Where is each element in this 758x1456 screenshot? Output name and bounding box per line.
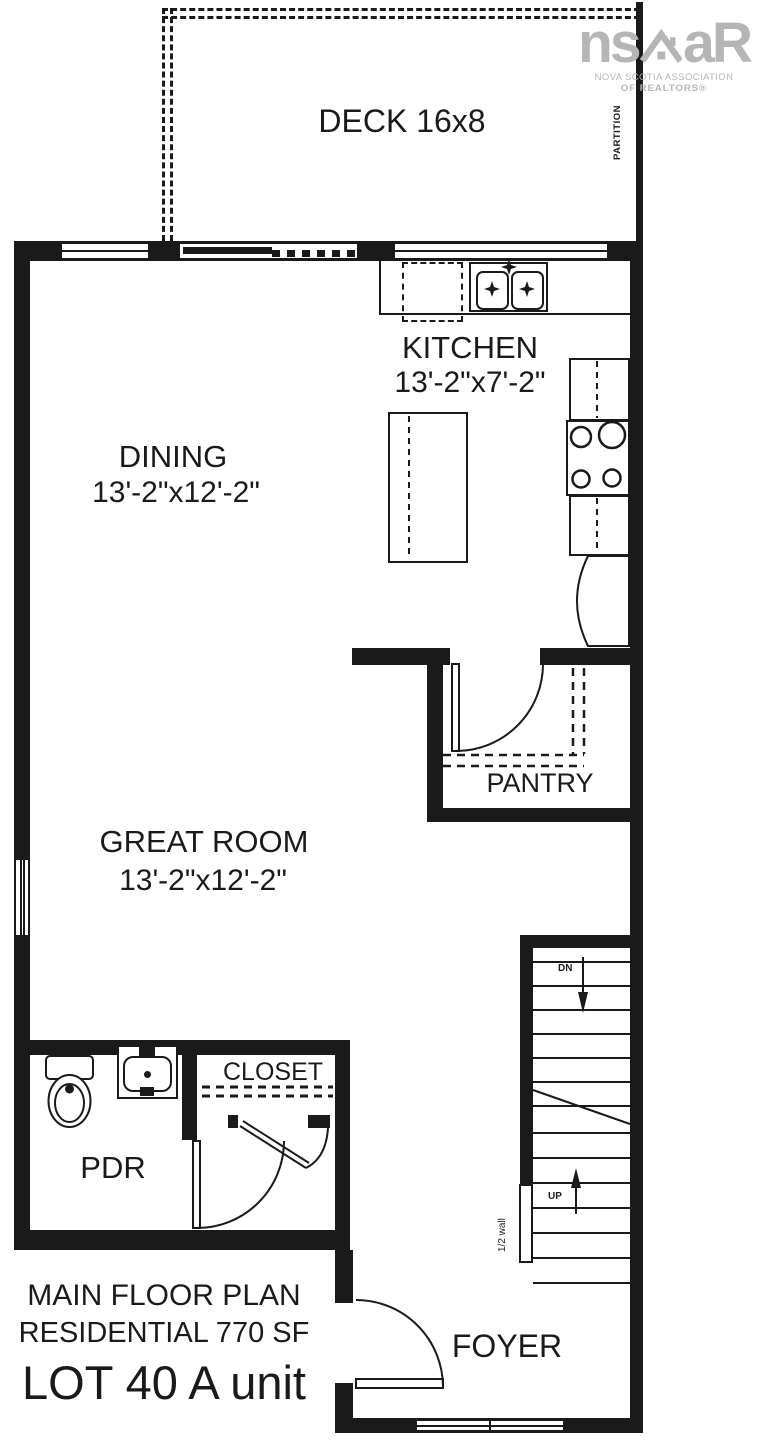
dining-dims: 13'-2"x12'-2" [92,476,260,510]
title-line-1: MAIN FLOOR PLAN [6,1280,322,1312]
fridge [577,556,629,646]
logo-word-left: ns [578,18,639,68]
entry-door-swing [356,1300,443,1387]
pdr-vanity [117,1045,178,1099]
closet-door-leaf [240,1121,328,1168]
closet-jamb-left [228,1115,238,1128]
great-room-dims: 13'-2"x12'-2" [119,864,287,898]
sink-basin-right [511,271,544,310]
wall-bottom-left [14,1230,350,1250]
wall-closet-foyer-divider [335,1055,350,1230]
partition-label: PARTITION [612,105,623,160]
logo-word-right: aR [683,18,750,68]
pantry-shelves [443,668,584,766]
pdr-label: PDR [80,1150,145,1186]
closet-door-swing [306,1128,328,1168]
wall-mid-left [352,648,450,665]
sliding-door-panel-solid [183,247,272,254]
wall-stairs-left [520,948,533,1185]
top-window-left [62,241,148,261]
toilet [46,1056,93,1127]
title-block: MAIN FLOOR PLAN RESIDENTIAL 770 SF LOT 4… [6,1280,322,1408]
floor-plan: DECK 16x8 KITCHEN 13'-2"x7'-2" DINING 13… [0,0,758,1456]
stair-treads [533,962,630,1283]
nsar-logo-wordmark: ns aR [578,18,750,68]
great-room-label: GREAT ROOM [100,824,309,860]
wall-top-corner-left [14,241,62,261]
foyer-window-mullion [489,1421,491,1430]
deck-railing-top-inner [162,16,640,19]
wall-foyer-left-lower [335,1383,353,1418]
pdr-door-swing [197,1141,284,1228]
pantry-door-leaf [452,664,459,751]
sliding-door-panel-dashed [272,250,356,257]
closet-rod [202,1087,333,1096]
title-line-2: RESIDENTIAL 770 SF [6,1318,322,1349]
foyer-window [417,1418,563,1433]
stair-break-line [533,1090,630,1124]
wall-foyer-left-upper [335,1250,353,1303]
entry-door-leaf [356,1379,443,1388]
title-line-3: LOT 40 A unit [6,1358,322,1409]
wall-top-segment-1 [148,241,180,261]
deck-railing-left-inner [170,8,173,241]
dishwasher [402,262,463,322]
deck-label: DECK 16x8 [318,103,485,140]
kitchen-window [395,241,607,261]
great-room-window [14,860,30,935]
counter-lower-right [569,495,630,556]
kitchen-island [388,412,468,563]
stair-half-wall [520,1185,532,1262]
wall-mid-right [540,648,630,665]
wall-top-segment-2 [357,241,395,261]
pantry-door-swing [456,664,543,751]
wall-pdr-closet-divider [182,1040,197,1140]
wall-left-lower [14,935,30,1250]
sliding-patio-door [180,241,357,261]
stairs-up-arrowhead [571,1168,581,1188]
deck-railing-top-outer [162,8,640,11]
house-roof-icon [640,24,683,68]
half-wall-label: 1/2 wall [497,1218,508,1252]
deck-railing-left-outer [162,8,165,241]
pdr-door-leaf [193,1141,200,1228]
wall-stairs-top [520,935,643,948]
closet-label: CLOSET [223,1058,323,1087]
nsar-logo: ns aR NOVA SCOTIA ASSOCIATION OF REALTOR… [578,18,750,94]
closet-jamb-right [308,1115,330,1128]
stairs-down-label: DN [558,963,572,974]
counter-upper-right [569,358,630,421]
wall-pantry-bottom [427,808,643,822]
foyer-label: FOYER [452,1328,562,1365]
stairs-up-label: UP [548,1191,562,1202]
stove [566,420,630,496]
dining-label: DINING [119,439,228,475]
kitchen-dims: 13'-2"x7'-2" [394,366,545,400]
wall-left-upper [14,241,30,860]
kitchen-label: KITCHEN [402,330,538,366]
logo-tagline-1: NOVA SCOTIA ASSOCIATION [578,72,750,83]
logo-tagline-2: OF REALTORS® [578,83,750,94]
sink-basin-left [476,271,509,310]
stairs-down-arrowhead [578,992,588,1013]
wall-right [630,241,643,1433]
pantry-label: PANTRY [486,768,593,799]
wall-pantry-left [427,665,443,808]
